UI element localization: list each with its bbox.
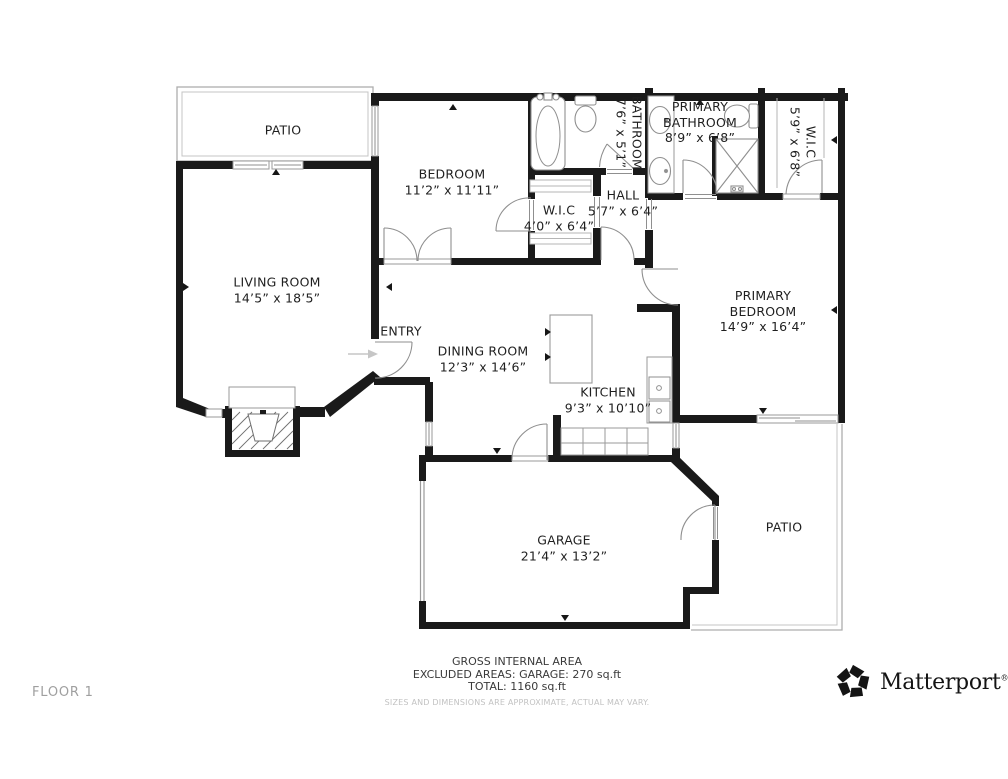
registered-mark: ® [1001, 673, 1008, 682]
area-summary: GROSS INTERNAL AREA EXCLUDED AREAS: GARA… [385, 656, 650, 709]
kitchen-island [550, 315, 592, 383]
brand-wordmark: Matterport® [880, 670, 1008, 695]
disclaimer-text: SIZES AND DIMENSIONS ARE APPROXIMATE, AC… [385, 697, 650, 710]
room-label-hall: HALL 5’7” x 6’4” [588, 188, 658, 219]
room-label-patio-top: PATIO [265, 122, 301, 138]
room-label-wic-hall: W.I.C 4’0” x 6’4” [524, 203, 594, 234]
total-area: TOTAL: 1160 sq.ft [385, 681, 650, 694]
bathtub [531, 93, 565, 170]
toilet-hall-bath [575, 96, 596, 132]
fireplace [229, 387, 295, 450]
gross-internal-area: GROSS INTERNAL AREA [385, 656, 650, 669]
room-label-garage: GARAGE 21’4” x 13’2” [521, 533, 608, 564]
garage-door [421, 481, 425, 601]
room-label-primary-bathroom: PRIMARY BATHROOM 8’9” x 6’8” [663, 99, 737, 146]
room-label-kitchen: KITCHEN 9’3” x 10’10” [565, 385, 652, 416]
floorplan-page: PATIO BEDROOM 11’2” x 11’11” BATHROOM 7’… [0, 0, 1008, 779]
room-label-bathroom: BATHROOM 7’6” x 5’1” [614, 96, 645, 170]
room-label-wic-right: W.I.C 5’9” x 6’8” [788, 107, 819, 177]
matterport-logo: Matterport® [834, 663, 1008, 701]
room-label-living-room: LIVING ROOM 14’5” x 18’5” [233, 275, 320, 306]
floor-label: FLOOR 1 [32, 685, 94, 700]
shower [716, 139, 758, 193]
entry-arrow-icon [348, 350, 378, 359]
room-label-primary-bedroom: PRIMARY BEDROOM 14’9” x 16’4” [720, 288, 807, 335]
room-label-bedroom: BEDROOM 11’2” x 11’11” [405, 167, 500, 198]
room-label-patio-right: PATIO [766, 519, 802, 535]
room-label-entry: ENTRY [380, 323, 421, 339]
room-label-dining-room: DINING ROOM 12’3” x 14’6” [438, 344, 529, 375]
matterport-pinwheel-icon [834, 663, 872, 701]
